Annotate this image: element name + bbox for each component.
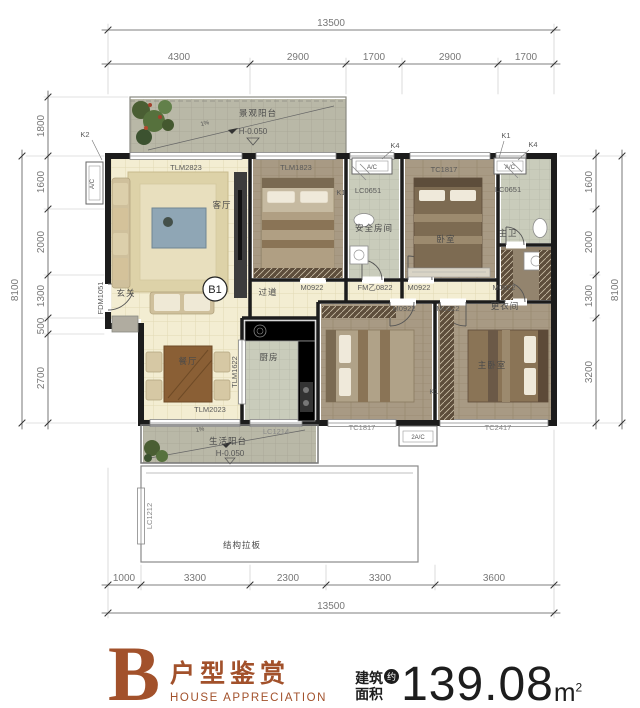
door-label-m0922-4: M0922: [437, 304, 460, 313]
dim-left-2: 2000: [36, 230, 47, 253]
master-window-label: TC2417: [485, 423, 512, 432]
unit-mark: B1: [203, 277, 227, 301]
dim-right-3: 3200: [584, 360, 595, 383]
dim-top-3: 2900: [439, 52, 462, 63]
bedroom3-window-label: TC1817: [349, 423, 376, 432]
dim-top-1: 2900: [287, 52, 310, 63]
floor-plan-drawing: 1% 景观阳台 H-0.050: [0, 0, 640, 636]
ac-platform-k2: A/C: [86, 162, 103, 204]
entry-door-label: FDM1051: [96, 282, 105, 315]
area-label-line1: 建筑: [355, 670, 383, 686]
kitchen-label: 厨房: [259, 352, 278, 362]
dim-left-3: 1300: [36, 284, 47, 307]
mark-k4-left: K4: [390, 141, 399, 150]
mark-k2: K2: [80, 130, 89, 139]
ac2-label: 2A/C: [411, 435, 425, 441]
area-label-line2: 面积: [355, 686, 383, 702]
living-label: 客厅: [212, 200, 231, 210]
plan-letter: B: [108, 642, 160, 706]
title-cn: 户型鉴赏: [170, 654, 327, 690]
dim-left-total: 8100: [10, 278, 21, 301]
dim-bottom-2: 2300: [277, 573, 300, 584]
area-block: 建筑 面积 约 139.08 m2: [355, 665, 582, 706]
door-label-m0922-2: M0922: [408, 283, 431, 292]
dim-right-0: 1600: [584, 170, 595, 193]
corridor-label: 过道: [258, 287, 277, 297]
ac-platform-bottom: 2A/C: [399, 426, 437, 446]
kitchen-window-label: LC1214: [263, 427, 289, 436]
dressing-door-label: M0822: [493, 283, 516, 292]
blind: [408, 268, 490, 277]
dining-label: 餐厅: [178, 356, 197, 366]
area-value: 139.08: [401, 665, 554, 706]
structure-note: 结构拉板: [223, 540, 261, 550]
fire-door-label: FM乙0822: [357, 283, 392, 292]
approx-badge: 约: [384, 669, 399, 684]
dining-window-label: TLM2023: [194, 405, 226, 414]
wardrobe: [254, 268, 342, 278]
ac-label: A/C: [90, 178, 96, 189]
dim-left-4: 500: [36, 317, 47, 334]
dim-right-1: 2000: [584, 230, 595, 253]
kitchen-slide-label: TLM1622: [230, 356, 239, 388]
footer: B 户型鉴赏 HOUSE APPRECIATION 建筑 面积 约 139.08…: [108, 636, 608, 706]
dim-left-1: 1600: [36, 170, 47, 193]
corridor-floor-2: [232, 300, 318, 318]
bedroom1-door-label: TLM1823: [280, 163, 312, 172]
ac-label: A/C: [367, 165, 378, 171]
mark-k4-right: K4: [528, 140, 537, 149]
title-en: HOUSE APPRECIATION: [170, 692, 327, 704]
bath-window-right-label: LC0651: [495, 185, 521, 194]
dim-right-total: 8100: [610, 278, 621, 301]
mark-k1-top: K1: [501, 131, 510, 140]
living-window-label: TLM2823: [170, 163, 202, 172]
bedroom2-window-label: TC1817: [431, 165, 458, 174]
balcony-top-level: H-0.050: [239, 127, 268, 136]
dim-bottom-0: 1000: [113, 573, 136, 584]
bedroom2-label: 卧室: [436, 234, 455, 244]
door-label-m0922-3: M0922: [393, 304, 416, 313]
toilet: [533, 219, 547, 238]
shoe-cabinet: [112, 316, 138, 332]
dim-top-2: 1700: [363, 52, 386, 63]
mark-k1-bedroom1: K1: [336, 188, 345, 197]
stove: [300, 382, 313, 412]
dim-bottom-3: 3300: [369, 573, 392, 584]
floor-plan-page: 1% 景观阳台 H-0.050: [0, 0, 640, 708]
wardrobe: [322, 306, 396, 318]
dressing-label: 更衣间: [491, 301, 520, 311]
master-bedroom-label: 主卧室: [478, 360, 507, 370]
dim-bottom-total: 13500: [317, 601, 345, 612]
wardrobe: [440, 306, 454, 420]
area-label: 建筑 面积: [355, 670, 383, 702]
dim-top-0: 4300: [168, 52, 191, 63]
dim-left-5: 2700: [36, 366, 47, 389]
dim-right-2: 1300: [584, 284, 595, 307]
structure-box: LC1212 结构拉板: [138, 466, 419, 562]
dim-top-total: 13500: [317, 18, 345, 29]
door-label-m0922-1: M0922: [301, 283, 324, 292]
bedroom2-furniture: [408, 178, 490, 277]
title-block: 户型鉴赏 HOUSE APPRECIATION: [170, 654, 327, 704]
entry-label: 玄关: [116, 288, 135, 298]
area-unit: m2: [554, 679, 582, 705]
coffee-table: [152, 208, 206, 248]
master-bath-label: 主卫: [498, 228, 517, 238]
washing-machine: [350, 246, 368, 264]
mark-k1-bottom: K1: [429, 387, 438, 396]
structure-window-label: LC1212: [145, 503, 154, 529]
dim-bottom-1: 3300: [184, 573, 207, 584]
bath-label: 安全房间: [355, 223, 393, 233]
dim-left-0: 1800: [36, 114, 47, 137]
bedroom1-furniture: [254, 178, 342, 278]
bath-window-left-label: LC0651: [355, 186, 381, 195]
balcony-top-label: 景观阳台: [239, 108, 277, 118]
unit-mark-label: B1: [208, 284, 221, 296]
balcony-bottom-level: H-0.050: [216, 449, 245, 458]
dim-top-4: 1700: [515, 52, 538, 63]
balcony-bottom-label: 生活阳台: [209, 436, 247, 446]
dim-bottom-4: 3600: [483, 573, 506, 584]
